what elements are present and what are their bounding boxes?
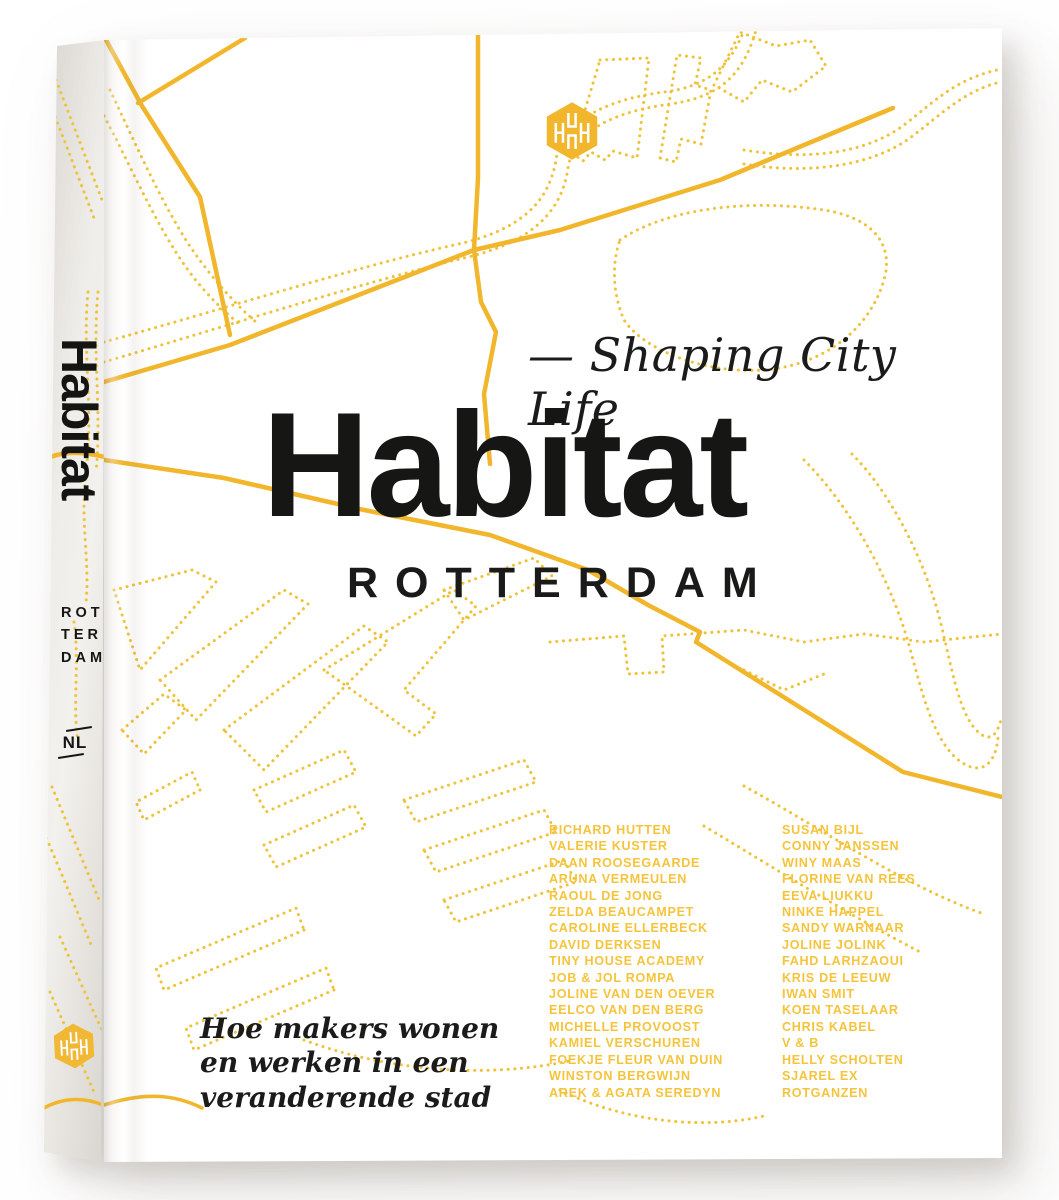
spine-title: Habitat [50,338,108,500]
contributor-name: EEVA LIUKKU [782,888,1002,904]
contributor-name: RAOUL DE JONG [549,888,779,904]
contributor-name: HELLY SCHOLTEN [782,1052,1002,1068]
contributor-name: SANDY WARNAAR [782,920,1002,936]
contributor-name: MICHELLE PROVOOST [549,1019,779,1035]
hexagon-monogram-logo-icon [545,100,599,162]
tagline-line: en werken in een [200,1046,499,1080]
cover-title: Habitat [262,364,746,565]
contributor-name: DAAN ROOSEGAARDE [549,855,779,871]
contributor-name: V & B [782,1035,1002,1051]
spine-country-code: NL [63,733,88,752]
contributor-name: SJAREL EX [782,1068,1002,1084]
contributors-right-column: SUSAN BIJLCONNY JANSSENWINY MAASFLORINE … [782,822,1002,1101]
contributor-name: KAMIEL VERSCHUREN [549,1035,779,1051]
cover-dutch-tagline: Hoe makers wonenen werken in eenverander… [200,1012,499,1115]
book-spine: PRISCILLA DE PUTTER Habitat ROTTERDAM NL… [44,40,105,1162]
contributor-name: SUSAN BIJL [782,822,1002,838]
tagline-line: veranderende stad [200,1081,499,1115]
contributor-name: FOEKJE FLEUR VAN DUIN [549,1052,779,1068]
contributor-name: IWAN SMIT [782,986,1002,1002]
contributor-name: ARUNA VERMEULEN [549,871,779,887]
contributor-name: KRIS DE LEEUW [782,970,1002,986]
cover-subtitle: ROTTERDAM [347,559,775,608]
spine-hexagon-monogram-icon [52,1021,96,1071]
spine-city-line: TER [61,624,106,646]
contributor-name: NINKE HAPPEL [782,904,1002,920]
spine-country-mark: NL [58,728,92,758]
contributor-name: JOLINE JOLINK [782,937,1002,953]
spine-city-line: DAM [61,647,106,669]
contributor-name: KOEN TASELAAR [782,1002,1002,1018]
page: PRISCILLA DE PUTTER Habitat ROTTERDAM NL… [0,0,1059,1200]
contributor-name: ZELDA BEAUCAMPET [549,904,779,920]
contributors-left-column: RICHARD HUTTENVALERIE KUSTERDAAN ROOSEGA… [549,822,779,1101]
contributor-name: CONNY JANSSEN [782,838,1002,854]
contributor-name: FLORINE VAN REES [782,871,1002,887]
contributor-name: CAROLINE ELLERBECK [549,920,779,936]
contributor-name: FAHD LARHZAOUI [782,953,1002,969]
contributor-name: WINY MAAS [782,855,1002,871]
tagline-line: Hoe makers wonen [200,1012,499,1046]
contributor-name: JOLINE VAN DEN OEVER [549,986,779,1002]
book-front-cover: — Shaping City Life Habitat ROTTERDAM RI… [104,28,1002,1162]
cover-content: — Shaping City Life Habitat ROTTERDAM RI… [104,28,1002,1162]
spine-city-name: ROTTERDAM [61,602,106,669]
contributor-name: CHRIS KABEL [782,1019,1002,1035]
contributor-name: ROTGANZEN [782,1085,1002,1101]
contributor-name: WINSTON BERGWIJN [549,1068,779,1084]
contributor-name: EELCO VAN DEN BERG [549,1002,779,1018]
contributor-name: RICHARD HUTTEN [549,822,779,838]
book: PRISCILLA DE PUTTER Habitat ROTTERDAM NL… [44,28,1002,1162]
contributor-name: VALERIE KUSTER [549,838,779,854]
contributor-name: TINY HOUSE ACADEMY [549,953,779,969]
contributor-name: JOB & JOL ROMPA [549,970,779,986]
contributor-name: AREK & AGATA SEREDYN [549,1085,779,1101]
spine-city-line: ROT [61,602,106,624]
contributor-name: DAVID DERKSEN [549,937,779,953]
